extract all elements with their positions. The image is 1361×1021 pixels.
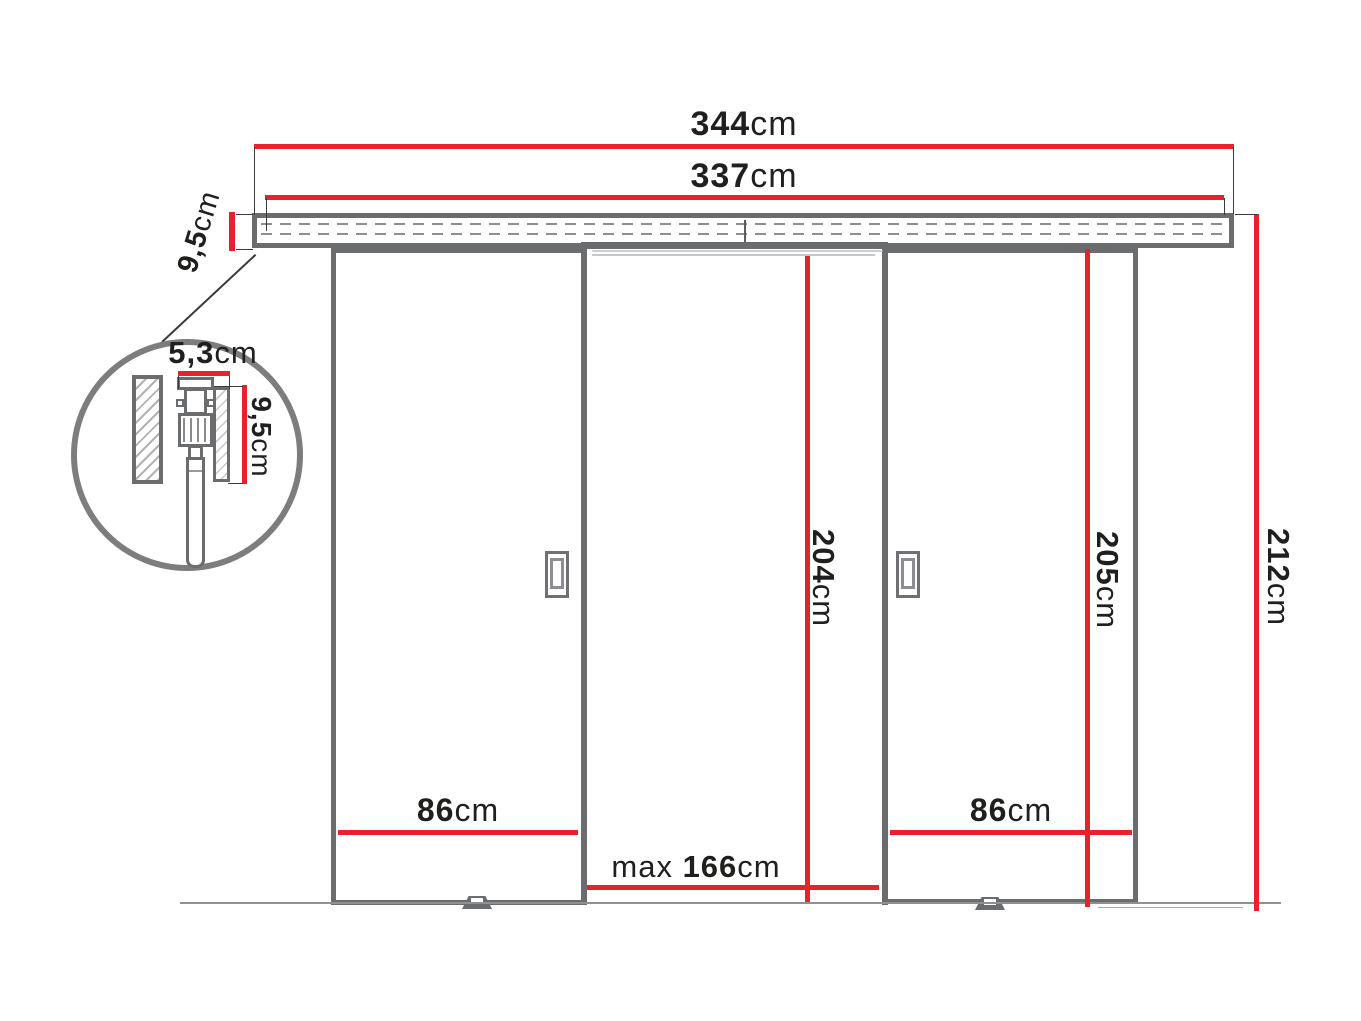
dim-unit: cm xyxy=(454,792,499,828)
dim-label-door-right-width: 86cm xyxy=(861,794,1161,826)
dim-unit: cm xyxy=(1261,583,1296,626)
floor-line-secondary xyxy=(1098,907,1243,908)
dim-value: 9,5 xyxy=(246,396,277,438)
dim-line-total-width xyxy=(254,144,1234,149)
dim-value: 86 xyxy=(417,792,455,828)
floor-line xyxy=(180,902,1281,904)
dim-unit: cm xyxy=(750,157,797,195)
sliding-door-dimension-diagram: 344cm 337cm 9,5cm 204cm 205cm 212cm 86cm… xyxy=(0,0,1361,1021)
detail-bracket-notch-right xyxy=(207,399,215,407)
extension-line xyxy=(1233,147,1234,214)
track-center-tick xyxy=(744,220,746,244)
detail-dim-label-track-height: 9,5cm xyxy=(247,377,275,497)
dim-line-door-left-width xyxy=(338,830,578,835)
dim-unit: cm xyxy=(214,335,257,370)
extension-line xyxy=(1224,198,1225,215)
dim-value: 5,3 xyxy=(168,335,214,370)
detail-dim-line-track-width xyxy=(178,371,230,376)
track-dashed-line-bottom xyxy=(261,233,1225,235)
dim-line-total-height xyxy=(1254,214,1259,911)
extension-line xyxy=(236,249,253,250)
dim-line-track-width xyxy=(265,195,1224,200)
detail-door-panel-line xyxy=(189,470,202,472)
track-dashed-line-top xyxy=(261,223,1225,225)
extension-line xyxy=(266,198,267,231)
dim-label-track-width: 337cm xyxy=(594,159,894,193)
dim-label-opening-width: max 166cm xyxy=(546,851,846,882)
extension-line xyxy=(178,376,179,389)
dim-line-door-right-width xyxy=(890,830,1132,835)
detail-roller-ribs xyxy=(183,418,208,442)
door-left-handle xyxy=(545,551,569,598)
dim-label-total-height: 212cm xyxy=(1260,492,1294,662)
dim-value: 204 xyxy=(806,529,841,584)
detail-roller xyxy=(178,413,213,447)
dim-label-door-left-width: 86cm xyxy=(308,794,608,826)
dim-value: 337 xyxy=(690,157,750,195)
detail-dim-label-track-width: 5,3cm xyxy=(133,337,293,368)
dim-unit: cm xyxy=(184,187,226,235)
detail-door-edge-section xyxy=(213,387,230,482)
dim-prefix: max xyxy=(611,849,682,884)
doorway-opening xyxy=(581,242,888,905)
dim-unit: cm xyxy=(806,584,841,627)
extension-line xyxy=(236,214,253,215)
door-right-handle-recess xyxy=(901,558,915,589)
dim-value: 86 xyxy=(970,792,1008,828)
doorway-opening-shadow-line xyxy=(592,254,875,256)
dim-unit: cm xyxy=(246,438,277,477)
detail-bracket-notch-left xyxy=(176,399,184,407)
dim-unit: cm xyxy=(750,105,797,143)
detail-wall-section xyxy=(132,375,163,484)
extension-line xyxy=(214,386,243,387)
dim-value: 344 xyxy=(690,105,750,143)
detail-door-panel xyxy=(186,457,205,568)
dim-label-door-height: 205cm xyxy=(1089,495,1123,665)
extension-line xyxy=(229,376,230,389)
extension-line xyxy=(228,483,243,484)
dim-unit: cm xyxy=(1007,792,1052,828)
dim-label-total-width: 344cm xyxy=(594,107,894,141)
dim-value: 205 xyxy=(1090,531,1125,586)
dim-label-track-height: 9,5cm xyxy=(167,165,234,298)
door-right-handle xyxy=(896,551,920,598)
door-left-handle-recess xyxy=(550,558,564,589)
dim-unit: cm xyxy=(737,849,780,884)
extension-line xyxy=(1235,214,1257,215)
detail-mount-bracket-stem xyxy=(184,388,207,415)
dim-value: 212 xyxy=(1261,528,1296,583)
dim-marker-track-height xyxy=(229,212,235,251)
extension-line xyxy=(254,147,255,215)
dim-label-opening-height: 204cm xyxy=(805,493,839,663)
dim-unit: cm xyxy=(1090,586,1125,629)
dim-line-opening-width xyxy=(587,885,879,890)
dim-value: 166 xyxy=(683,849,738,884)
